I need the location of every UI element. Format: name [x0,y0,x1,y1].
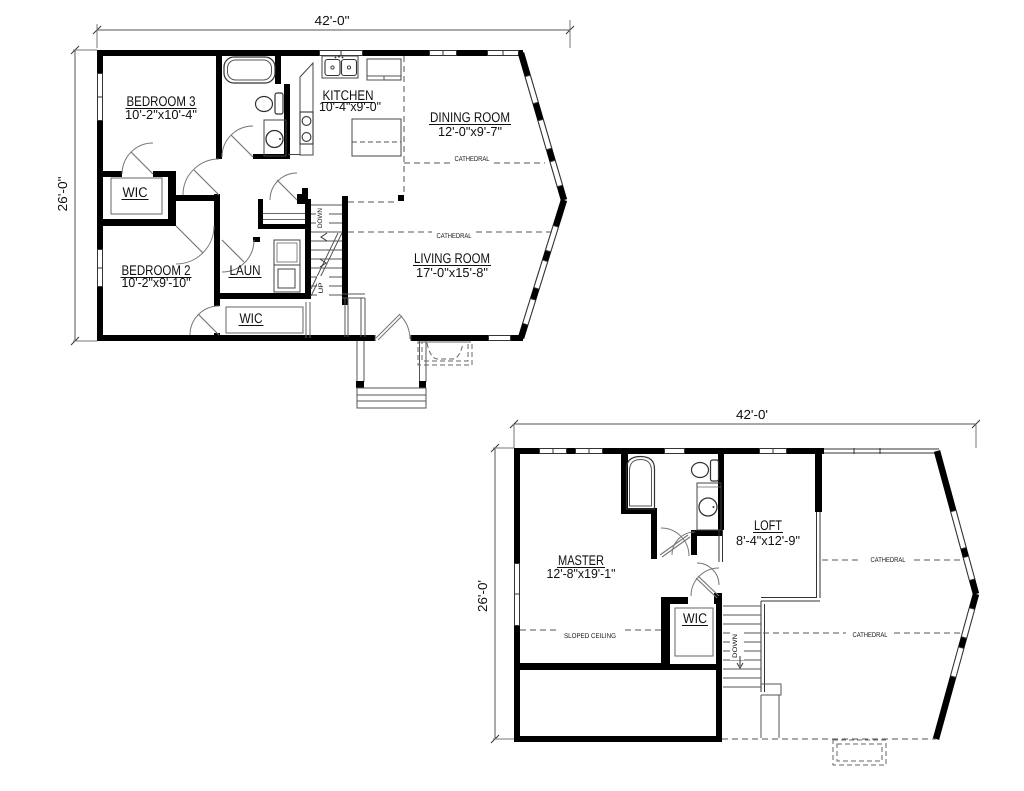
svg-text:DOWN: DOWN [317,208,324,228]
svg-text:42'-0": 42'-0" [315,13,350,28]
svg-text:UP: UP [318,283,325,294]
svg-text:12'-0"x9'-7": 12'-0"x9'-7" [438,124,502,139]
svg-text:CATHEDRAL: CATHEDRAL [871,557,906,564]
svg-text:LOFT: LOFT [754,517,782,533]
svg-text:8'-4"x12'-9": 8'-4"x12'-9" [736,533,800,548]
svg-text:10'-2"x10'-4": 10'-2"x10'-4" [125,107,197,122]
svg-text:SLOPED CEILING: SLOPED CEILING [564,633,616,640]
svg-text:LAUN: LAUN [230,262,261,278]
svg-text:17'-0"x15'-8": 17'-0"x15'-8" [416,265,488,280]
svg-text:26'-0': 26'-0' [475,580,490,612]
svg-text:CATHEDRAL: CATHEDRAL [437,233,472,240]
svg-text:CATHEDRAL: CATHEDRAL [853,632,888,639]
svg-text:12'-8"x19'-1": 12'-8"x19'-1" [547,566,616,581]
svg-text:LIVING ROOM: LIVING ROOM [414,250,490,266]
svg-text:42'-0': 42'-0' [736,407,768,422]
svg-text:WIC: WIC [683,610,707,626]
svg-text:CATHEDRAL: CATHEDRAL [455,156,490,163]
svg-text:DINING ROOM: DINING ROOM [430,109,510,125]
svg-text:10'-4"x9'-0": 10'-4"x9'-0" [319,99,381,114]
svg-text:WIC: WIC [123,184,148,200]
svg-text:DOWN: DOWN [732,634,739,658]
svg-text:26'-0": 26'-0" [55,176,70,211]
svg-text:10'-2"x9'-10": 10'-2"x9'-10" [122,275,191,290]
svg-text:WIC: WIC [240,310,263,326]
